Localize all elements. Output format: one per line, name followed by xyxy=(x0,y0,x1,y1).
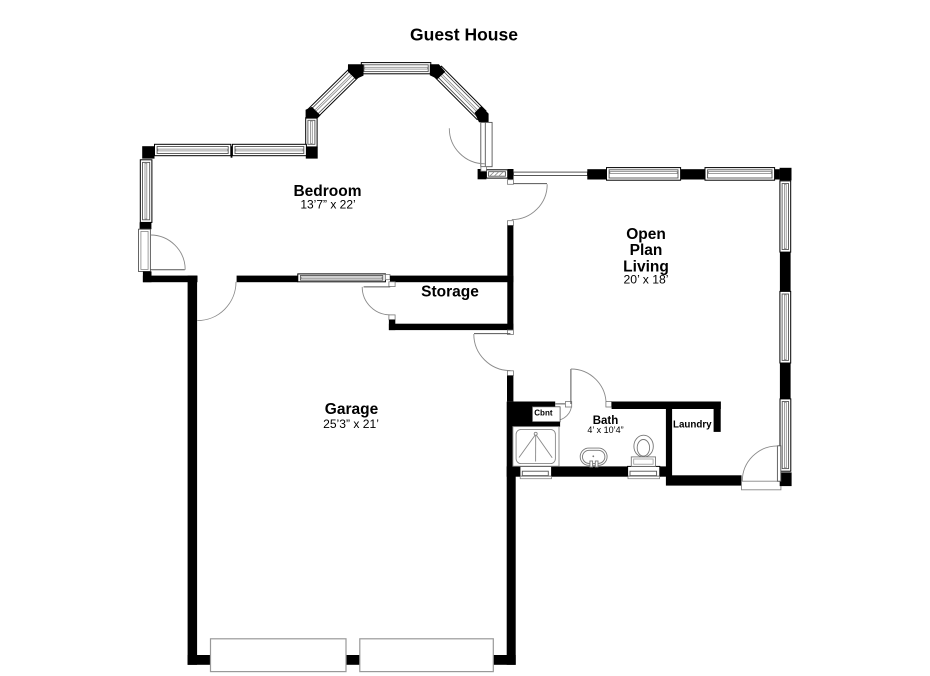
svg-text:13’7” x 22’: 13’7” x 22’ xyxy=(300,198,355,212)
svg-text:Open: Open xyxy=(626,226,666,243)
svg-text:Guest House: Guest House xyxy=(410,24,518,44)
svg-text:Cbnt: Cbnt xyxy=(534,408,553,417)
svg-text:Plan: Plan xyxy=(630,242,663,259)
svg-text:Laundry: Laundry xyxy=(673,419,712,430)
svg-text:Garage: Garage xyxy=(325,401,379,418)
svg-text:20’ x 18’: 20’ x 18’ xyxy=(624,273,669,287)
svg-text:4’ x 10’4”: 4’ x 10’4” xyxy=(587,425,623,435)
svg-text:Storage: Storage xyxy=(421,284,479,301)
svg-text:25’3” x 21’: 25’3” x 21’ xyxy=(323,417,379,431)
